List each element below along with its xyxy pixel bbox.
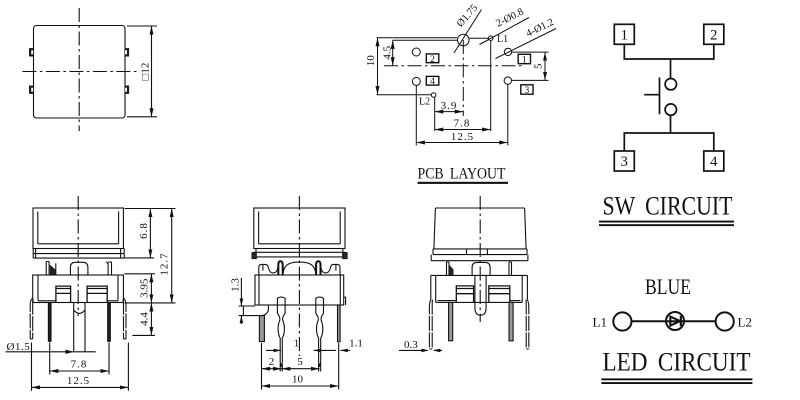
- svg-text:1.1: 1.1: [349, 338, 363, 350]
- svg-text:L2: L2: [738, 315, 752, 330]
- svg-text:2: 2: [269, 356, 275, 368]
- svg-text:7.8: 7.8: [454, 118, 471, 130]
- svg-text:2: 2: [710, 28, 717, 44]
- svg-text:10: 10: [292, 374, 304, 386]
- svg-text:1: 1: [294, 338, 300, 350]
- svg-text:3: 3: [621, 154, 628, 170]
- svg-text:12.5: 12.5: [67, 375, 90, 387]
- svg-text:BLUE: BLUE: [645, 274, 691, 299]
- svg-text:□12: □12: [140, 63, 152, 81]
- svg-text:12.5: 12.5: [451, 131, 474, 143]
- svg-text:5: 5: [297, 356, 303, 368]
- svg-text:LED CIRCUIT: LED CIRCUIT: [603, 348, 751, 377]
- svg-text:4.4: 4.4: [139, 312, 151, 326]
- svg-text:2: 2: [430, 55, 435, 65]
- svg-text:L1: L1: [497, 34, 508, 45]
- svg-text:SW CIRCUIT: SW CIRCUIT: [603, 192, 733, 221]
- svg-text:1.3: 1.3: [230, 278, 242, 292]
- svg-text:7.8: 7.8: [71, 359, 88, 371]
- svg-text:PCB LAYOUT: PCB LAYOUT: [418, 166, 506, 183]
- svg-text:1: 1: [621, 28, 628, 44]
- svg-text:4: 4: [430, 77, 435, 87]
- svg-text:4.5: 4.5: [381, 45, 393, 59]
- svg-text:Ø1.5: Ø1.5: [7, 341, 31, 353]
- svg-text:12.7: 12.7: [159, 252, 171, 275]
- svg-text:0.3: 0.3: [404, 339, 418, 351]
- svg-text:6.8: 6.8: [138, 222, 150, 239]
- svg-text:5: 5: [533, 63, 545, 69]
- svg-text:4: 4: [710, 154, 718, 170]
- svg-text:L2: L2: [419, 97, 430, 108]
- svg-text:L1: L1: [593, 315, 607, 330]
- svg-text:3: 3: [525, 86, 530, 96]
- svg-text:3.95: 3.95: [139, 278, 151, 298]
- svg-text:3.9: 3.9: [441, 100, 458, 112]
- svg-text:10: 10: [365, 55, 377, 67]
- svg-text:1: 1: [522, 56, 527, 66]
